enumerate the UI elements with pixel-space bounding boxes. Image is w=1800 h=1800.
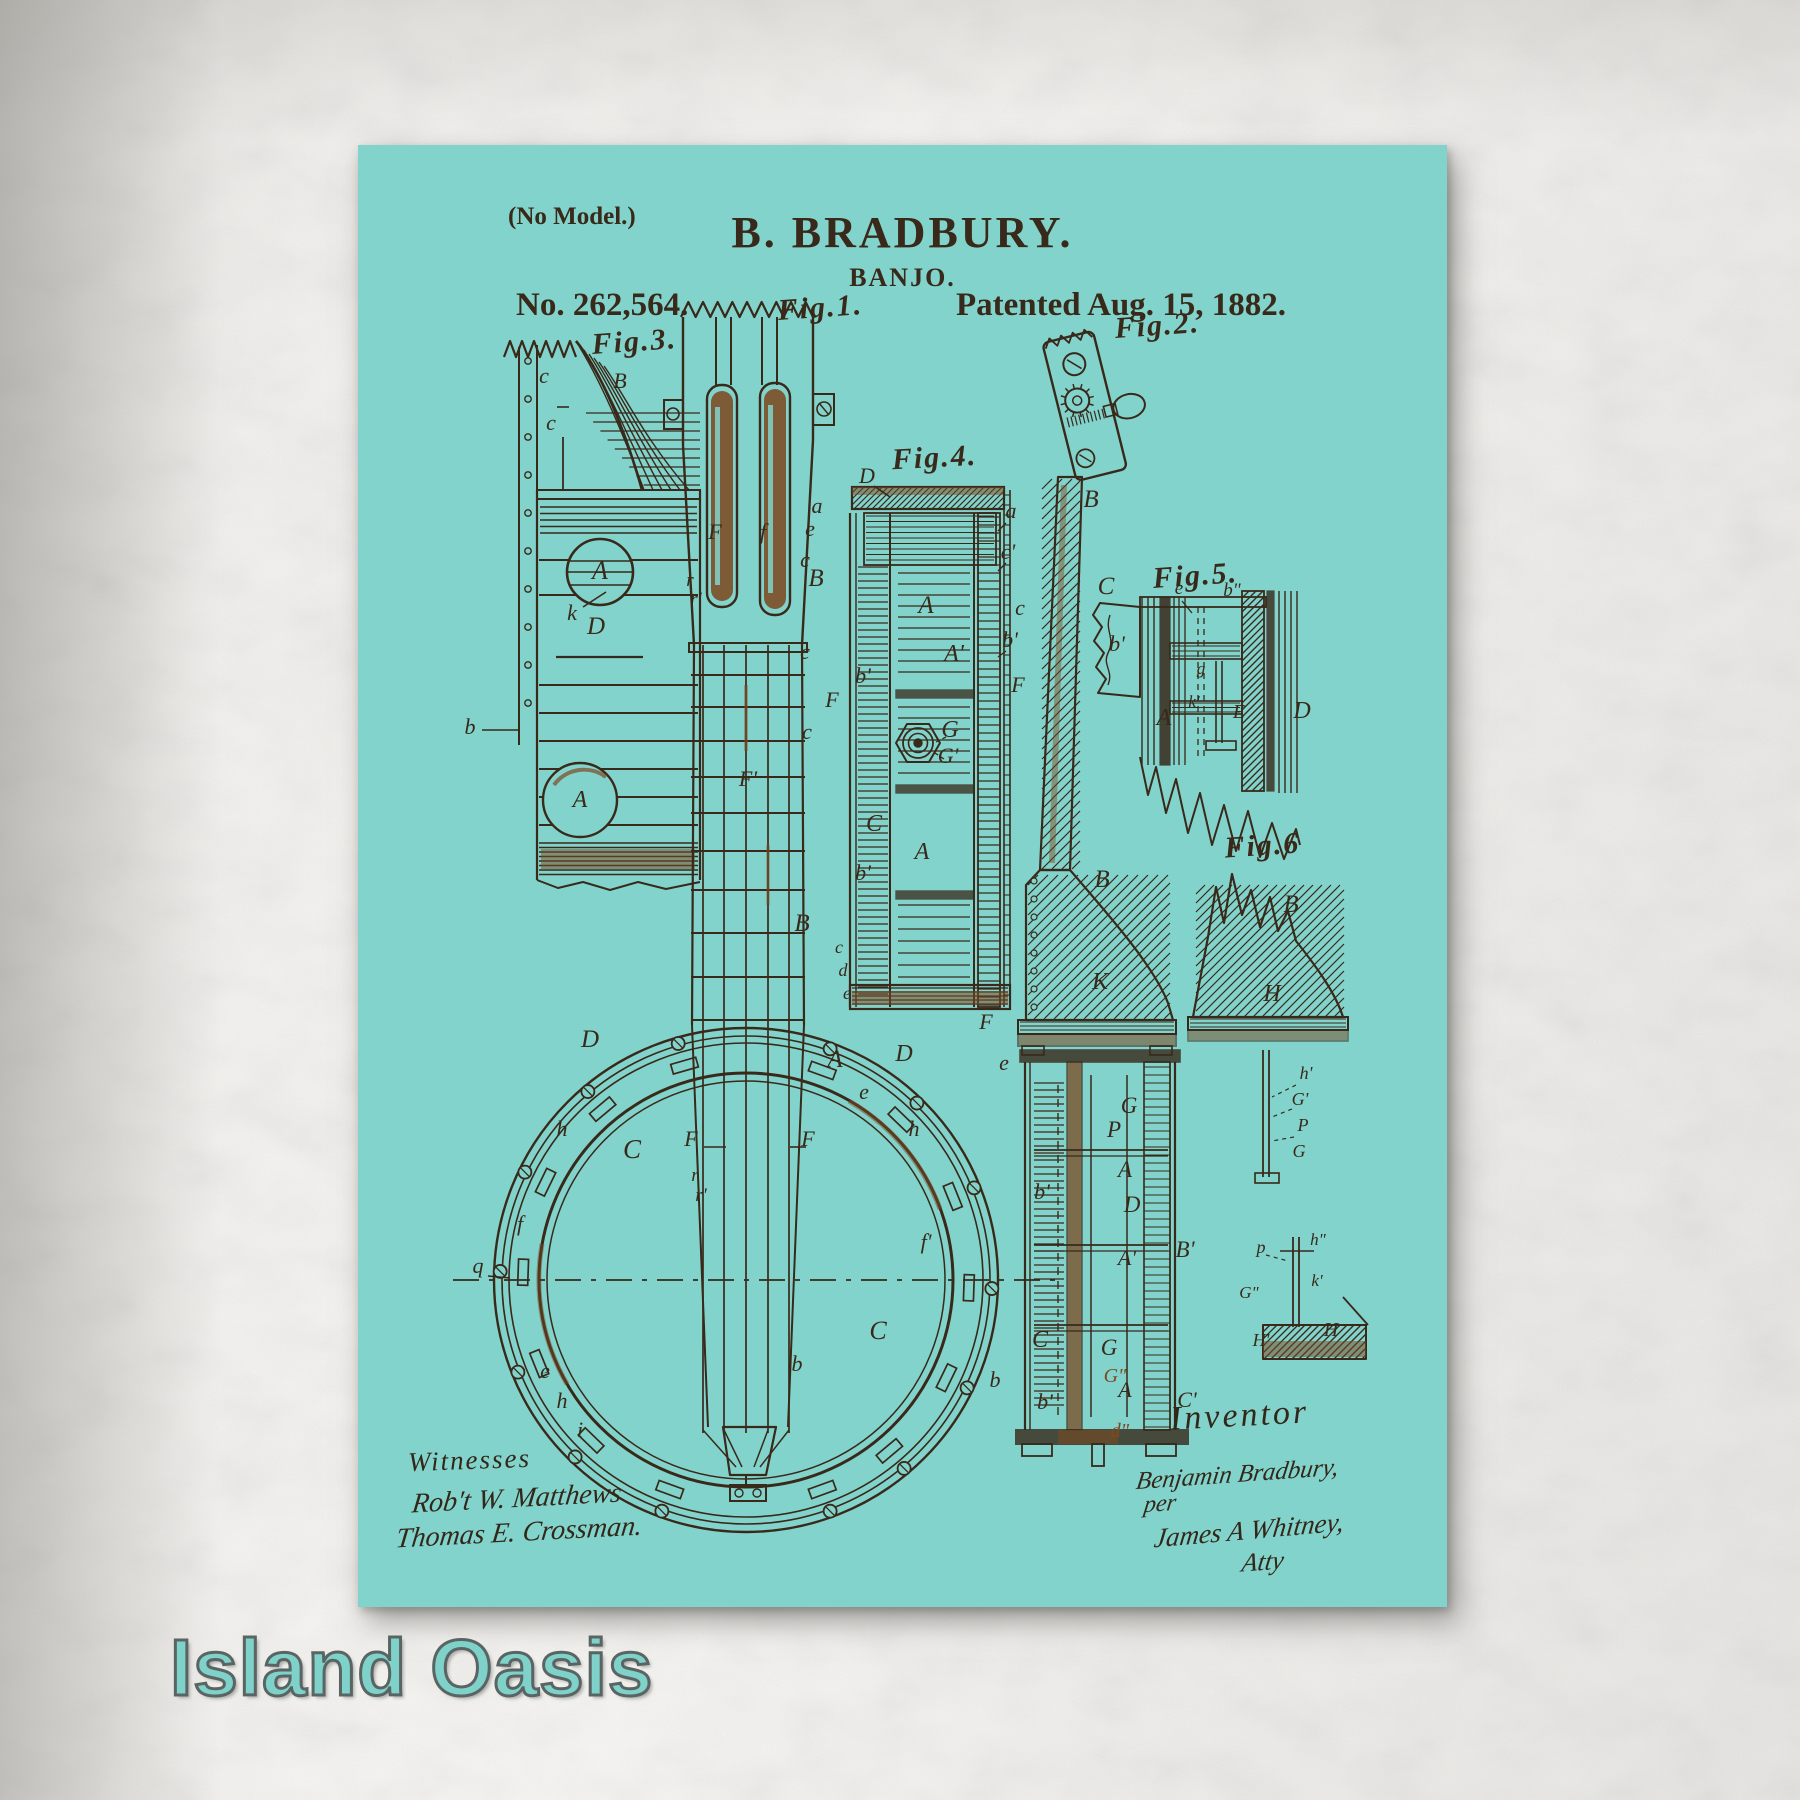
part-label: c' [1001,539,1016,564]
part-label: A [1155,705,1172,731]
part-label: h' [1300,1063,1314,1083]
part-label: b' [855,860,871,885]
part-label: r [686,570,694,591]
part-label: h [557,1116,568,1141]
part-label: r' [690,589,702,610]
part-label: B' [1176,1237,1196,1262]
part-label: F [1010,672,1025,697]
part-label: A [1116,1157,1133,1182]
wall-shading-top [0,0,1800,140]
part-label: C [1032,1327,1049,1353]
part-label: G [1293,1141,1306,1161]
part-label: B [808,565,823,592]
part-label: h" [1310,1230,1327,1249]
part-label: F [707,519,722,544]
part-label: D [580,1026,599,1053]
part-label: F [978,1009,993,1034]
part-label: i [577,1417,583,1442]
inventor-signature: per [1142,1490,1178,1520]
part-label: c [802,719,812,744]
part-label: e [999,1050,1009,1075]
part-label: b' [855,663,871,688]
part-label: D [858,463,875,488]
part-label: b [990,1367,1001,1392]
part-label: G [1121,1093,1138,1118]
part-label: A' [942,641,965,667]
part-label: b [792,1351,803,1376]
part-label: b" [1223,580,1242,601]
part-label: b [465,714,476,739]
part-label: C [1098,573,1115,600]
witnesses-heading: Witnesses [407,1443,531,1478]
part-label: D [1292,698,1310,724]
part-label: g [1197,659,1206,678]
part-label: B [1083,486,1098,513]
part-label: D [1123,1192,1141,1217]
figure-label: Fig.1. [776,288,864,327]
part-label: C [869,1316,887,1345]
part-label: q [473,1253,484,1278]
part-label: G" [1104,1365,1127,1387]
part-label: F [800,1126,815,1151]
part-label: G' [1292,1089,1310,1109]
part-label: D [586,613,605,640]
part-label: c [546,410,556,435]
part-label: A [825,1046,843,1073]
part-label: c [800,639,810,664]
part-label: F [824,687,839,712]
figure-labels: Fig.3.Fig.1.Fig.2.Fig.4.Fig.5.Fig.6 [590,288,1302,865]
part-label: A [571,787,588,813]
part-label: H' [1252,1330,1271,1350]
part-label: E [1232,701,1245,723]
part-label: C [866,811,883,837]
part-label: A [590,556,608,585]
part-label: H [1323,1319,1340,1341]
part-label: F' [738,766,757,791]
part-label: B [613,368,626,393]
part-label: h [557,1388,568,1413]
part-label: e [1175,578,1183,599]
fig4-rim-cross-section [850,486,1010,1009]
figure-label: Fig.4. [890,439,978,476]
part-label: k' [1311,1271,1323,1290]
figure-label: Fig.6 [1222,826,1301,864]
part-label: C [623,1134,642,1164]
patent-date: Patented Aug. 15, 1882. [956,287,1286,324]
fig6-heel-detail [1188,874,1368,1359]
patent-drawing: Fig.3.Fig.1.Fig.2.Fig.4.Fig.5.Fig.6ccBAk… [358,145,1447,1607]
inventor-signature: Atty [1240,1545,1286,1578]
part-label: b' [1034,1179,1050,1204]
part-label: f' [921,1229,932,1254]
part-label: B [1094,866,1109,893]
part-label: P [1106,1117,1121,1142]
figure-label: Fig.3. [590,322,678,361]
part-label: A [913,839,930,865]
patent-inventor-title: B. BRADBURY. [358,207,1447,258]
part-label: G" [1239,1283,1259,1302]
part-label: a [1006,498,1017,523]
part-label: G' [938,743,959,768]
part-label: f [517,1211,526,1236]
part-label: e [859,1079,869,1104]
part-label: a [812,493,823,518]
part-label: e [540,1358,550,1383]
part-label: H [1262,981,1282,1007]
part-label: b' [1002,627,1018,652]
part-label: A' [1116,1245,1136,1270]
part-label: B [1283,891,1298,918]
brand-watermark: Island Oasis [170,1622,653,1714]
part-label: e [843,983,851,1003]
part-label: p [1255,1237,1266,1257]
part-label: b' [1037,1389,1053,1414]
part-label: r [691,1165,699,1186]
part-label: B [794,910,809,937]
part-label: c [539,363,549,388]
part-label: G [1101,1335,1118,1360]
part-label: A [916,592,934,619]
part-label: e [805,516,815,541]
part-label: F [683,1126,698,1151]
part-label: D [894,1041,912,1067]
part-label: d" [1111,1420,1130,1442]
part-label: d [839,960,849,980]
part-label: K [1091,969,1110,995]
wall-shading-left [0,0,220,1800]
patent-poster: Fig.3.Fig.1.Fig.2.Fig.4.Fig.5.Fig.6ccBAk… [358,145,1447,1607]
patent-number: No. 262,564. [516,287,688,324]
part-label: P [1297,1115,1309,1135]
part-label: G [941,717,958,743]
part-label: k [567,600,578,625]
part-label: h [909,1116,920,1141]
inventor-heading: Inventor [1169,1393,1310,1438]
part-label: k' [1188,692,1200,711]
part-label: r' [695,1185,707,1206]
part-label: c [1015,595,1025,620]
part-label: c [835,937,843,957]
part-label: b' [1109,631,1125,656]
